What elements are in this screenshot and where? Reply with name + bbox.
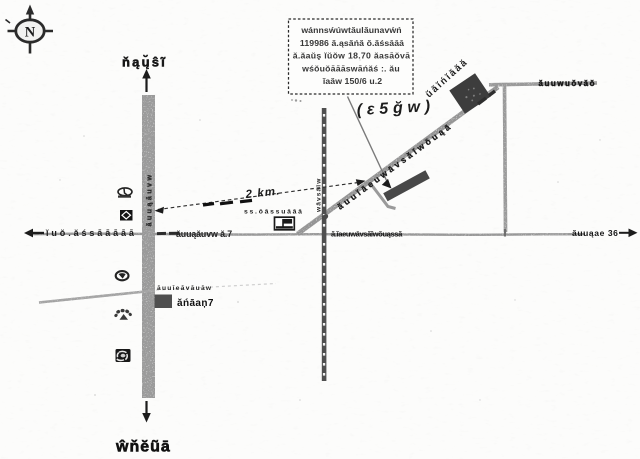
- svg-text:ŵňĕũā: ŵňĕũā: [115, 439, 171, 456]
- svg-text:ňąų̆ŝĩ: ňąų̆ŝĩ: [122, 53, 167, 69]
- svg-text:ăńāaņ7: ăńāaņ7: [177, 298, 214, 309]
- svg-text:ă.ĭaeuwāvsăĭwŏuąssă: ă.ĭaeuwāvsăĭwŏuąssă: [331, 230, 403, 239]
- svg-text:ăuuąăuvw ă.7: ăuuąăuvw ă.7: [176, 229, 232, 239]
- svg-text:119986 ă.ąsăńă ŏ.ăśsāāā: 119986 ă.ąsăńă ŏ.ăśsāāā: [300, 38, 404, 48]
- svg-text:ă.ăaŭş ĭŭŏw 18.70 ăasāŏvā: ă.ăaŭş ĭŭŏw 18.70 ăasāŏvā: [293, 51, 411, 61]
- svg-text:wāvsăĭw: wāvsăĭw: [316, 178, 323, 213]
- svg-text:ss.ŏăssuăăă: ss.ŏăssuăăă: [244, 209, 304, 216]
- svg-text:ăuuąae 36: ăuuąae 36: [572, 228, 619, 238]
- svg-text:ăuuwuŏvăŏ: ăuuwuŏvăŏ: [539, 79, 597, 88]
- svg-text:wśŏuŏāāāswāńăś :. ău: wśŏuŏāāāswāńăś :. ău: [301, 63, 400, 73]
- svg-text:N: N: [25, 25, 36, 41]
- svg-text:wánnsẃúwtăulăunavẃń: wánnsẃúwtăulăunavẃń: [300, 25, 401, 35]
- svg-text:ăuuĭeāvăuăw: ăuuĭeāvăuăw: [157, 285, 212, 292]
- svg-text:ĭuŏ.ăśsāāāāā: ĭuŏ.ăśsāāāāā: [45, 228, 137, 238]
- svg-text:ĭaăw 150/6 u.2: ĭaăw 150/6 u.2: [322, 76, 382, 86]
- svg-text:ăuuąăuvw: ăuuąăuvw: [144, 173, 153, 227]
